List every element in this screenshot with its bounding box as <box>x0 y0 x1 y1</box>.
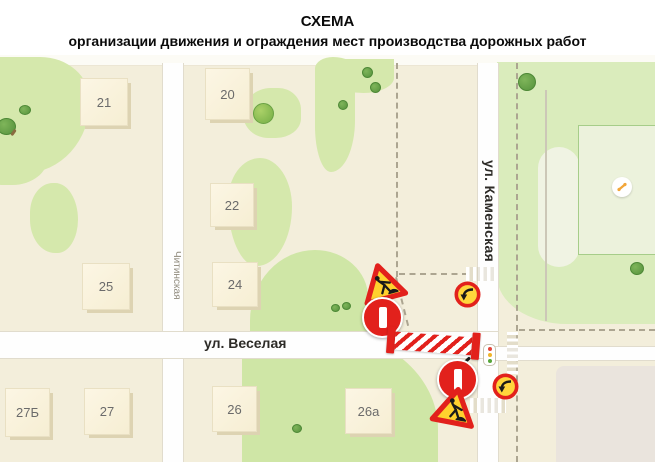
street-label-veselaya: ул. Веселая <box>204 335 286 351</box>
building-27: 27 <box>84 388 130 435</box>
building-22: 22 <box>210 183 254 227</box>
page-subtitle: организации движения и ограждения мест п… <box>0 33 655 49</box>
building-number: 27 <box>100 404 114 419</box>
building-number: 26а <box>358 404 380 419</box>
road-works-sign <box>428 381 481 431</box>
tree-icon <box>292 424 302 433</box>
pedestrian-crossing-north <box>466 267 496 281</box>
traffic-light-icon <box>483 344 496 366</box>
building-26a: 26а <box>345 388 392 434</box>
street-label-chitinskaya: Читинская <box>162 240 182 310</box>
building-number: 25 <box>99 279 113 294</box>
tree-icon <box>253 103 274 124</box>
building-25: 25 <box>82 263 130 310</box>
turn-restriction-sign <box>492 373 519 400</box>
traffic-light-red <box>488 347 492 351</box>
seesaw-glyph <box>614 179 630 195</box>
building-number: 27Б <box>16 405 39 420</box>
tree-icon <box>331 304 340 312</box>
traffic-light-green <box>488 359 492 363</box>
city-map: Читинская ул. Веселая ул. Каменская 21 2… <box>0 55 655 462</box>
turn-restriction-sign <box>454 281 481 308</box>
building-number: 26 <box>227 402 241 417</box>
green-area <box>30 183 78 253</box>
pedestrian-crossing-east <box>507 332 518 374</box>
green-area <box>0 133 48 185</box>
page-title: СХЕМА <box>0 13 655 30</box>
tree-icon <box>342 302 351 310</box>
building-number: 20 <box>220 87 234 102</box>
tree-icon <box>370 82 381 93</box>
building-number: 22 <box>225 198 239 213</box>
building-20: 20 <box>205 68 250 120</box>
playground-icon <box>612 177 632 197</box>
boundary-dashed-line <box>396 63 398 277</box>
boundary-dashed-line <box>399 273 468 275</box>
tree-icon <box>630 262 644 275</box>
boundary-dashed-line <box>516 63 518 462</box>
traffic-scheme-page: СХЕМА организации движения и ограждения … <box>0 0 655 462</box>
traffic-light-yellow <box>488 353 492 357</box>
tree-icon <box>362 67 373 78</box>
tree-icon <box>19 105 31 115</box>
barrier-stripes <box>394 331 472 355</box>
large-building-footprint <box>556 366 655 462</box>
building-26: 26 <box>212 386 257 432</box>
no-entry-bar <box>379 307 387 328</box>
building-number: 24 <box>228 277 242 292</box>
boundary-dashed-line <box>519 329 655 331</box>
building-24: 24 <box>212 262 258 307</box>
scheme-title-block: СХЕМА организации движения и ограждения … <box>0 0 655 55</box>
building-21: 21 <box>80 78 128 126</box>
building-number: 21 <box>97 95 111 110</box>
footpath <box>545 90 547 321</box>
tree-icon <box>518 73 536 91</box>
street-label-kamenskaya: ул. Каменская <box>477 145 498 277</box>
building-27b: 27Б <box>5 388 50 437</box>
tree-icon <box>338 100 348 110</box>
